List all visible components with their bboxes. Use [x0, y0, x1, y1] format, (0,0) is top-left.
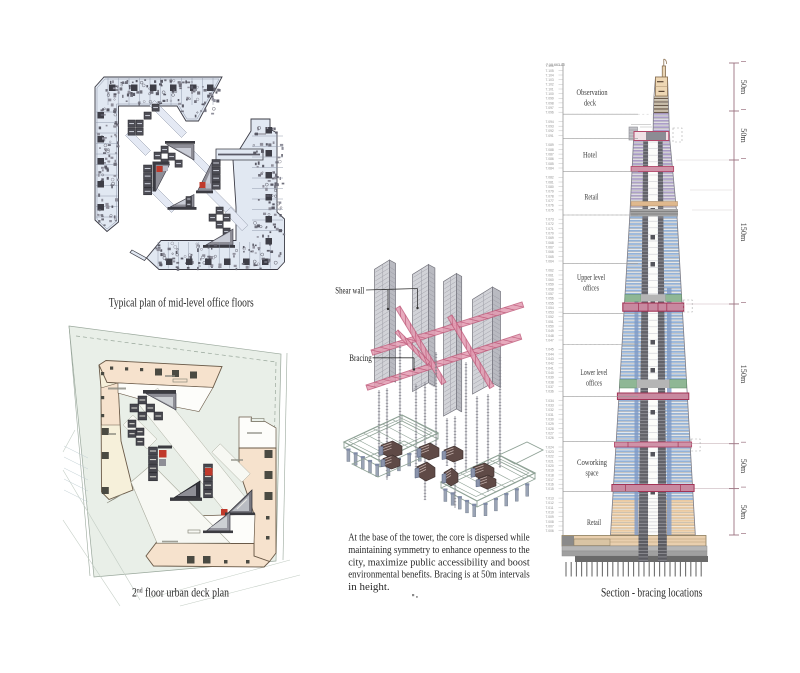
svg-text:Coworking: Coworking: [577, 458, 607, 467]
svg-text:7.017: 7.017: [546, 478, 554, 482]
svg-text:7.105: 7.105: [546, 69, 554, 73]
svg-text:7.050: 7.050: [546, 325, 554, 329]
svg-text:offices: offices: [583, 284, 599, 293]
svg-text:7.041: 7.041: [546, 366, 554, 370]
svg-text:7.037: 7.037: [546, 385, 554, 389]
svg-text:7.024: 7.024: [546, 445, 554, 449]
svg-text:Lower level: Lower level: [581, 368, 608, 377]
svg-text:7.093: 7.093: [546, 125, 554, 129]
svg-text:7.009: 7.009: [546, 515, 554, 519]
svg-text:7.094: 7.094: [546, 120, 554, 124]
svg-text:7.054: 7.054: [546, 306, 554, 310]
svg-text:7.011: 7.011: [546, 506, 554, 510]
svg-text:Retail: Retail: [585, 193, 600, 202]
svg-text:7.016: 7.016: [546, 483, 554, 487]
svg-text:7.026: 7.026: [546, 436, 554, 440]
svg-text:7.052: 7.052: [546, 315, 554, 319]
svg-text:7.055: 7.055: [546, 301, 554, 305]
svg-text:7.065: 7.065: [546, 255, 554, 259]
svg-text:7.008: 7.008: [546, 520, 554, 524]
svg-text:7.091: 7.091: [546, 134, 554, 138]
svg-text:7.056: 7.056: [546, 297, 554, 301]
svg-text:7.085: 7.085: [546, 162, 554, 166]
svg-text:Upper level: Upper level: [577, 273, 606, 282]
svg-text:7.088: 7.088: [546, 148, 554, 152]
svg-text:7.092: 7.092: [546, 129, 554, 133]
svg-text:7.10 663.00: 7.10 663.00: [546, 63, 565, 67]
svg-text:7.044: 7.044: [546, 352, 554, 356]
svg-text:7.102: 7.102: [546, 83, 554, 87]
svg-text:Retail: Retail: [587, 518, 602, 527]
svg-text:50m: 50m: [739, 505, 748, 520]
svg-text:At the base of the tower, the: At the base of the tower, the core is di…: [348, 532, 530, 544]
svg-text:7.031: 7.031: [546, 413, 554, 417]
svg-text:7.096: 7.096: [546, 111, 554, 115]
svg-text:7.061: 7.061: [546, 273, 554, 277]
svg-text:7.042: 7.042: [546, 362, 554, 366]
svg-text:7.023: 7.023: [546, 450, 554, 454]
svg-text:7.075: 7.075: [546, 208, 554, 212]
svg-text:deck: deck: [584, 99, 597, 108]
svg-text:7.071: 7.071: [546, 227, 554, 231]
svg-text:7.048: 7.048: [546, 334, 554, 338]
svg-text:50m: 50m: [739, 80, 748, 95]
svg-text:7.033: 7.033: [546, 404, 554, 408]
svg-text:150m: 150m: [739, 365, 748, 384]
svg-text:7.068: 7.068: [546, 241, 554, 245]
svg-text:Typical plan of mid-level offi: Typical plan of mid-level office floors: [109, 295, 254, 310]
svg-text:7.084: 7.084: [546, 166, 554, 170]
svg-text:7.077: 7.077: [546, 199, 554, 203]
svg-text:50m: 50m: [739, 128, 748, 143]
svg-text:7.103: 7.103: [546, 78, 554, 82]
svg-text:city, maximize public accessib: city, maximize public accessibility and …: [348, 556, 530, 568]
svg-text:7.078: 7.078: [546, 194, 554, 198]
svg-text:7.047: 7.047: [546, 338, 554, 342]
svg-text:7.029: 7.029: [546, 422, 554, 426]
svg-text:Hotel: Hotel: [583, 151, 598, 160]
svg-text:7.070: 7.070: [546, 232, 554, 236]
svg-text:7.089: 7.089: [546, 143, 554, 147]
svg-text:space: space: [586, 469, 599, 478]
svg-text:7.013: 7.013: [546, 497, 554, 501]
svg-text:7.059: 7.059: [546, 283, 554, 287]
svg-text:2nd floor urban deck plan: 2nd floor urban deck plan: [132, 585, 229, 600]
svg-text:7.007: 7.007: [546, 524, 554, 528]
svg-text:7.020: 7.020: [546, 464, 554, 468]
svg-text:7.058: 7.058: [546, 287, 554, 291]
svg-text:7.060: 7.060: [546, 278, 554, 282]
svg-text:7.034: 7.034: [546, 399, 554, 403]
svg-text:7.067: 7.067: [546, 246, 554, 250]
svg-text:7.036: 7.036: [546, 390, 554, 394]
svg-text:7.097: 7.097: [546, 106, 554, 110]
svg-text:7.080: 7.080: [546, 185, 554, 189]
svg-text:7.012: 7.012: [546, 501, 554, 505]
svg-text:Bracing: Bracing: [349, 354, 372, 364]
svg-text:7.030: 7.030: [546, 418, 554, 422]
svg-text:150m: 150m: [739, 223, 748, 242]
svg-text:50m: 50m: [739, 459, 748, 474]
svg-text:7.076: 7.076: [546, 204, 554, 208]
svg-text:7.104: 7.104: [546, 73, 554, 77]
svg-text:7.015: 7.015: [546, 487, 554, 491]
svg-text:7.086: 7.086: [546, 157, 554, 161]
svg-text:7.069: 7.069: [546, 236, 554, 240]
svg-text:7.051: 7.051: [546, 320, 554, 324]
svg-text:Section - bracing locations: Section - bracing locations: [601, 585, 703, 600]
svg-text:7.082: 7.082: [546, 176, 554, 180]
svg-text:7.027: 7.027: [546, 431, 554, 435]
svg-text:7.087: 7.087: [546, 153, 554, 157]
svg-text:7.081: 7.081: [546, 180, 554, 184]
svg-text:offices: offices: [586, 379, 602, 388]
svg-text:7.053: 7.053: [546, 311, 554, 315]
svg-text:7.006: 7.006: [546, 529, 554, 533]
svg-text:7.028: 7.028: [546, 427, 554, 431]
svg-text:7.043: 7.043: [546, 357, 554, 361]
svg-text:7.057: 7.057: [546, 292, 554, 296]
svg-text:in height.: in height.: [348, 581, 390, 593]
svg-text:7.021: 7.021: [546, 459, 554, 463]
svg-text:7.038: 7.038: [546, 380, 554, 384]
svg-text:7.064: 7.064: [546, 259, 554, 263]
svg-text:7.019: 7.019: [546, 469, 554, 473]
svg-text:7.066: 7.066: [546, 250, 554, 254]
svg-text:7.098: 7.098: [546, 101, 554, 105]
svg-text:maintaining symmetry to enhanc: maintaining symmetry to enhance openness…: [348, 544, 530, 556]
svg-text:Shear wall: Shear wall: [335, 287, 364, 297]
svg-text:7.062: 7.062: [546, 269, 554, 273]
svg-text:7.018: 7.018: [546, 473, 554, 477]
svg-text:7.100: 7.100: [546, 92, 554, 96]
svg-text:7.040: 7.040: [546, 371, 554, 375]
svg-text:Observation: Observation: [577, 88, 608, 97]
svg-text:7.045: 7.045: [546, 348, 554, 352]
svg-text:7.010: 7.010: [546, 511, 554, 515]
svg-text:7.032: 7.032: [546, 408, 554, 412]
svg-text:7.079: 7.079: [546, 190, 554, 194]
svg-text:7.101: 7.101: [546, 87, 554, 91]
svg-text:7.099: 7.099: [546, 97, 554, 101]
svg-text:7.073: 7.073: [546, 218, 554, 222]
svg-text:environmental benefits. Bracin: environmental benefits. Bracing is at 50…: [348, 569, 530, 581]
svg-text:7.072: 7.072: [546, 222, 554, 226]
svg-text:7.039: 7.039: [546, 376, 554, 380]
svg-text:7.049: 7.049: [546, 329, 554, 333]
svg-text:7.022: 7.022: [546, 455, 554, 459]
